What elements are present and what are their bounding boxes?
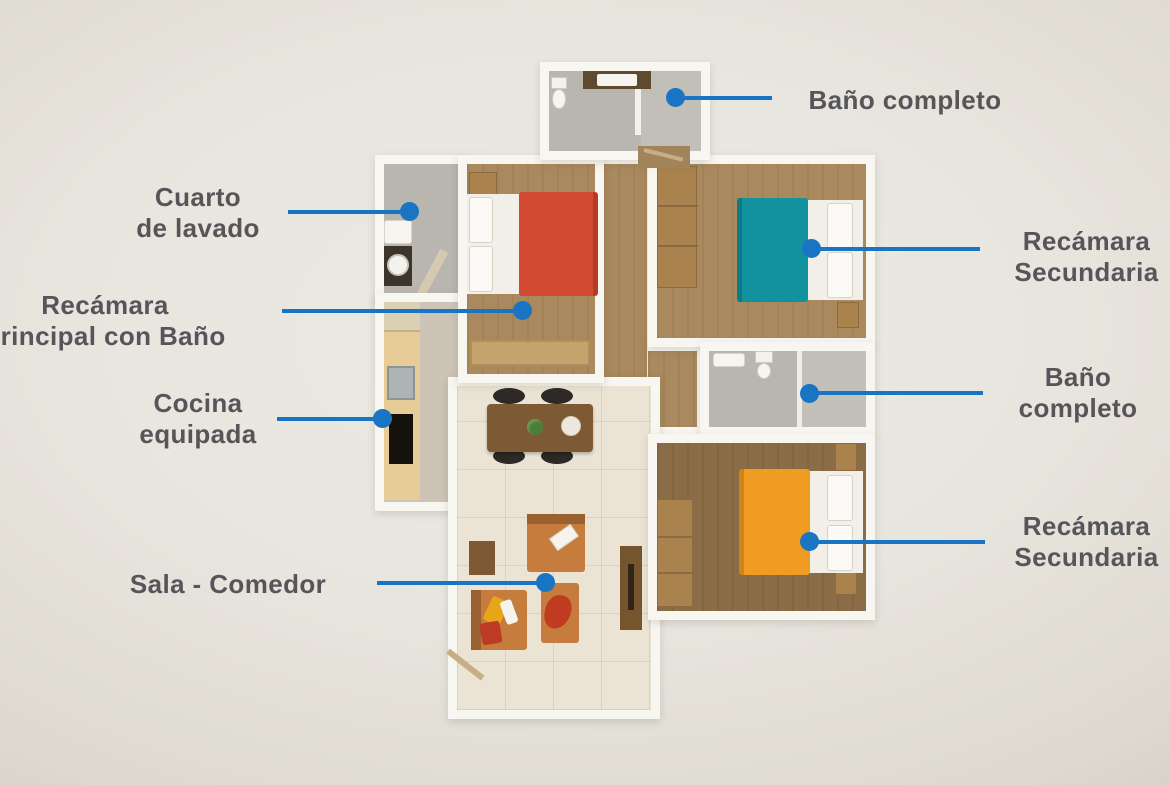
side-table [469, 541, 495, 575]
armchair [541, 583, 579, 643]
kitchen-stove [389, 414, 413, 464]
wardrobe-shelf [658, 245, 698, 247]
sofa-pillow [549, 524, 579, 551]
laundry-shelf [384, 220, 412, 244]
toilet-bowl [757, 363, 771, 379]
label-line: Secundaria [984, 257, 1170, 288]
sofa-back [527, 514, 585, 524]
red-pillow [479, 620, 503, 645]
callout-dot-laundry [400, 202, 419, 221]
callout-dot-bath-right [800, 384, 819, 403]
loveseat [471, 590, 527, 650]
room-bedroom2-bottom [648, 434, 875, 620]
callout-line-bath-right [810, 391, 983, 395]
washing-machine [384, 246, 412, 286]
wardrobe [657, 166, 697, 288]
toilet-bowl [552, 89, 566, 109]
bathroom-sink [597, 74, 637, 86]
doorway [638, 146, 690, 168]
table-bowl [561, 416, 581, 436]
label-cocina-equipada: Cocina equipada [98, 388, 298, 450]
room-living-dining [448, 377, 660, 719]
bed-blanket-master [519, 192, 598, 296]
label-line: Recámara [984, 511, 1170, 542]
callout-dot-bath-top [666, 88, 685, 107]
dining-table [487, 404, 593, 452]
label-bano-completo-top: Baño completo [790, 85, 1020, 116]
label-line: Cocina [98, 388, 298, 419]
callout-dot-master [513, 301, 532, 320]
wardrobe-shelf [658, 572, 694, 574]
room-master-bedroom [458, 155, 604, 383]
table-plant [527, 419, 543, 435]
bed-blanket-secondary-bottom [739, 469, 810, 575]
entrance-door [446, 649, 484, 681]
label-line: Secundaria [984, 542, 1170, 573]
label-line: equipada [98, 419, 298, 450]
dining-chair [541, 388, 573, 404]
label-line: de lavado [98, 213, 298, 244]
label-line: Recámara [984, 226, 1170, 257]
sofa [527, 514, 585, 572]
callout-line-kitchen [277, 417, 383, 421]
callout-line-bedroom2-top [812, 247, 980, 251]
bed-pillow [469, 246, 493, 292]
bed-blanket-secondary-top [737, 198, 808, 302]
nightstand [837, 302, 859, 328]
toilet-tank [551, 77, 567, 89]
label-line: principal con Baño [0, 321, 270, 352]
white-pillow [499, 599, 518, 626]
callout-line-bath-top [676, 96, 772, 100]
bathroom-vanity [583, 71, 651, 89]
callout-line-bedroom2-bottom [810, 540, 985, 544]
bed-pillow [827, 203, 853, 249]
red-throw [542, 593, 574, 631]
callout-line-master [282, 309, 523, 313]
label-cuarto-de-lavado: Cuarto de lavado [98, 182, 298, 244]
callout-dot-living [536, 573, 555, 592]
kitchen-sink [387, 366, 415, 400]
room-laundry [375, 155, 467, 305]
toilet-tank [755, 351, 773, 363]
callout-dot-bedroom2-top [802, 239, 821, 258]
washing-machine-door [387, 254, 409, 276]
kitchen-cabinet [384, 302, 420, 332]
callout-dot-kitchen [373, 409, 392, 428]
wardrobe-shelf [658, 205, 698, 207]
wardrobe [657, 499, 693, 607]
callout-dot-bedroom2-bottom [800, 532, 819, 551]
closet [470, 340, 590, 366]
bed-pillow [827, 525, 853, 571]
callout-line-living [377, 581, 545, 585]
bed-master [467, 194, 593, 294]
door-leaf [644, 148, 684, 162]
label-line: Cuarto [98, 182, 298, 213]
label-sala-comedor: Sala - Comedor [83, 569, 373, 600]
label-line: Sala - Comedor [83, 569, 373, 600]
label-line: Recámara [0, 290, 270, 321]
bathroom-sink [713, 353, 745, 367]
bed-pillow [827, 252, 853, 298]
label-line: completo [978, 393, 1170, 424]
loveseat-back [471, 590, 481, 650]
label-recamara-secundaria-bottom: Recámara Secundaria [984, 511, 1170, 573]
room-bathroom-middle [700, 342, 875, 436]
label-line: Baño [978, 362, 1170, 393]
room-bedroom2-top [648, 155, 875, 347]
ironing-board [417, 249, 448, 297]
nightstand [469, 172, 497, 196]
wardrobe-shelf [658, 536, 694, 538]
label-bano-completo-right: Baño completo [978, 362, 1170, 424]
bed-pillow [469, 197, 493, 243]
dining-chair [493, 388, 525, 404]
callout-line-laundry [288, 210, 410, 214]
tv [628, 564, 634, 610]
bed-pillow [827, 475, 853, 521]
label-recamara-secundaria-top: Recámara Secundaria [984, 226, 1170, 288]
bed-secondary-bottom [739, 471, 863, 573]
nightstand [835, 443, 857, 471]
label-line: Baño completo [790, 85, 1020, 116]
label-recamara-principal: Recámara principal con Baño [0, 290, 270, 352]
tv-console [620, 546, 642, 630]
scene-background: Cuarto de lavado Recámara principal con … [0, 0, 1170, 785]
